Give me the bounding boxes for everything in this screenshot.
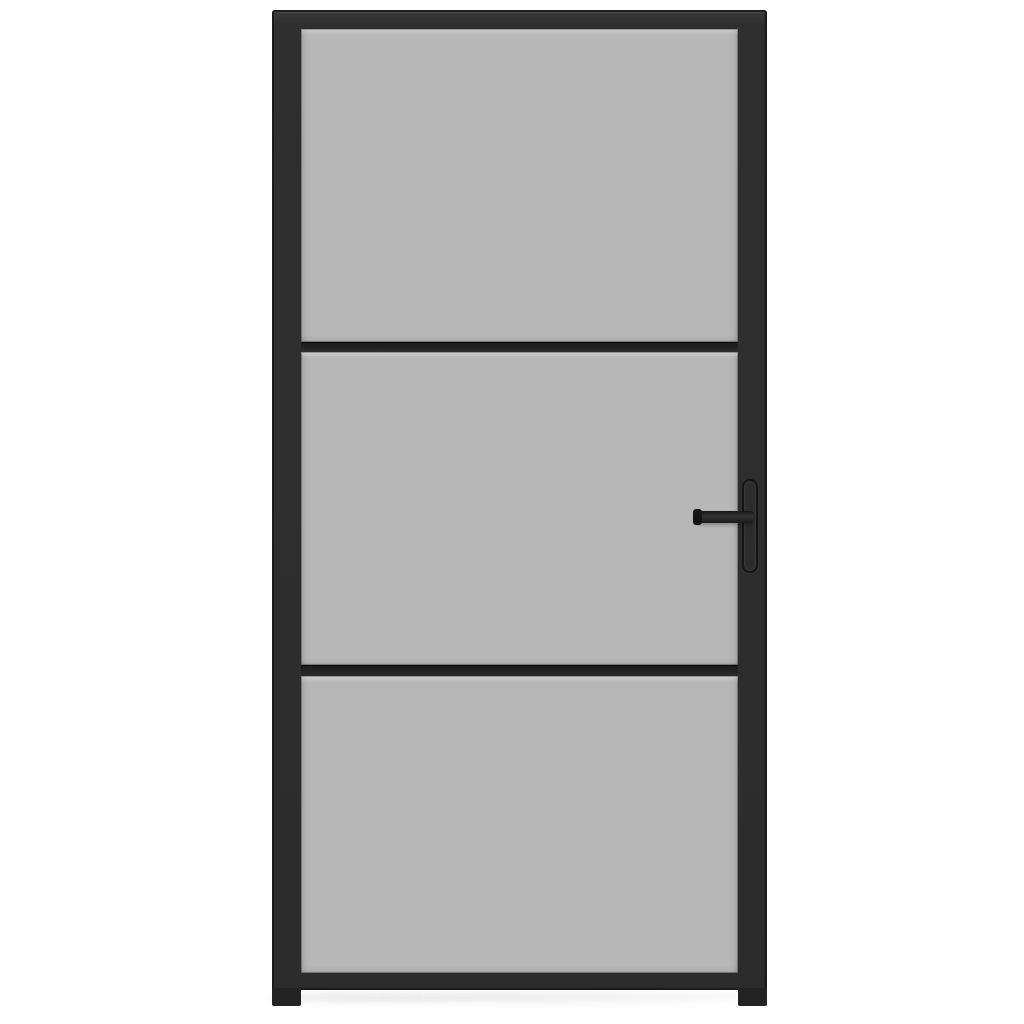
product-photo bbox=[0, 0, 1024, 1024]
door bbox=[272, 10, 767, 990]
handle-backplate bbox=[742, 479, 758, 573]
handle-lever-cap bbox=[693, 509, 702, 525]
handle-lever bbox=[696, 511, 753, 523]
door-handle bbox=[272, 10, 767, 990]
door-foot-left bbox=[272, 988, 301, 1006]
floor-shadow bbox=[266, 993, 772, 1002]
door-foot-right bbox=[738, 988, 767, 1006]
